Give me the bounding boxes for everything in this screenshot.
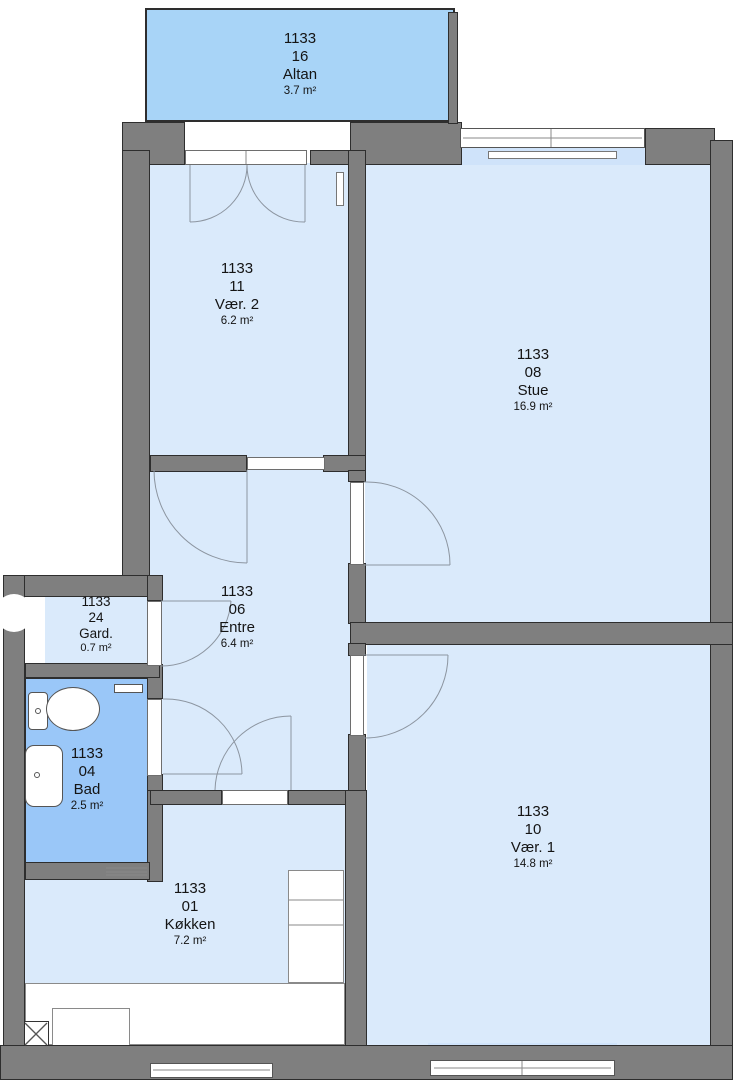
door-opening-stue — [350, 482, 364, 565]
wall — [345, 790, 367, 1048]
room-area: 16.9 m² — [473, 400, 593, 414]
wall — [122, 150, 150, 580]
room-label-vaer1: 1133 10 Vær. 1 14.8 m² — [473, 803, 593, 871]
wall — [350, 622, 733, 645]
room-name: Køkken — [130, 916, 250, 934]
wall — [288, 790, 350, 805]
window-koekken — [150, 1063, 273, 1078]
room-area: 2.5 m² — [32, 799, 142, 813]
room-unit: 1133 — [177, 583, 297, 601]
pipe-circle-symbol — [0, 594, 33, 632]
door-opening-balcony — [185, 150, 307, 165]
radiator-vaer2 — [336, 172, 344, 206]
room-unit: 1133 — [46, 594, 146, 610]
bath-vent — [114, 684, 143, 693]
radiator-stue — [488, 151, 617, 159]
room-number: 11 — [177, 278, 297, 296]
room-unit: 1133 — [240, 30, 360, 48]
room-number: 16 — [240, 48, 360, 66]
toilet-flush-dot — [35, 708, 41, 714]
wall — [25, 663, 160, 678]
room-name: Bad — [32, 781, 142, 799]
room-label-entre: 1133 06 Entre 6.4 m² — [177, 583, 297, 651]
room-number: 10 — [473, 821, 593, 839]
wall — [348, 563, 366, 624]
door-opening-bad — [147, 699, 162, 776]
wall — [348, 470, 366, 482]
room-label-stue: 1133 08 Stue 16.9 m² — [473, 346, 593, 414]
room-label-bad: 1133 04 Bad 2.5 m² — [32, 745, 142, 813]
room-name: Vær. 2 — [177, 296, 297, 314]
wall — [348, 734, 366, 792]
wall — [150, 790, 222, 805]
room-name: Entre — [177, 619, 297, 637]
room-area: 14.8 m² — [473, 857, 593, 871]
room-unit: 1133 — [473, 346, 593, 364]
room-label-altan: 1133 16 Altan 3.7 m² — [240, 30, 360, 98]
room-area: 6.2 m² — [177, 314, 297, 328]
room-label-koekken: 1133 01 Køkken 7.2 m² — [130, 880, 250, 948]
kitchen-island — [52, 1008, 130, 1048]
wall — [348, 150, 366, 470]
kitchen-counter-right — [288, 870, 344, 983]
wall — [645, 128, 715, 165]
room-unit: 1133 — [473, 803, 593, 821]
room-number: 24 — [46, 610, 146, 626]
wall — [0, 1045, 733, 1080]
wall — [25, 862, 150, 880]
room-area: 7.2 m² — [130, 934, 250, 948]
floor-plan: 1133 16 Altan 3.7 m² 1133 11 Vær. 2 6.2 … — [0, 0, 733, 1080]
window-stue — [460, 128, 645, 148]
room-number: 01 — [130, 898, 250, 916]
wall — [147, 575, 163, 601]
door-opening-vaer1 — [350, 655, 364, 736]
door-opening-koekken — [222, 790, 288, 805]
toilet-bowl-icon — [46, 687, 100, 731]
wall — [710, 140, 733, 1065]
room-name: Vær. 1 — [473, 839, 593, 857]
wall — [350, 122, 462, 165]
window-vaer1 — [430, 1060, 615, 1076]
room-area: 6.4 m² — [177, 637, 297, 651]
room-area: 0.7 m² — [46, 642, 146, 655]
wall — [448, 12, 458, 124]
wall — [150, 455, 247, 472]
room-label-gard: 1133 24 Gard. 0.7 m² — [46, 594, 146, 655]
room-label-vaer2: 1133 11 Vær. 2 6.2 m² — [177, 260, 297, 328]
room-unit: 1133 — [32, 745, 142, 763]
room-name: Stue — [473, 382, 593, 400]
room-name: Gard. — [46, 626, 146, 642]
room-number: 06 — [177, 601, 297, 619]
room-number: 08 — [473, 364, 593, 382]
room-area: 3.7 m² — [240, 84, 360, 98]
door-opening-gard — [147, 601, 162, 666]
room-unit: 1133 — [177, 260, 297, 278]
room-name: Altan — [240, 66, 360, 84]
shaft-x-symbol — [23, 1021, 49, 1047]
door-opening-vaer2 — [247, 457, 325, 470]
wall — [3, 575, 25, 1055]
room-unit: 1133 — [130, 880, 250, 898]
room-number: 04 — [32, 763, 142, 781]
